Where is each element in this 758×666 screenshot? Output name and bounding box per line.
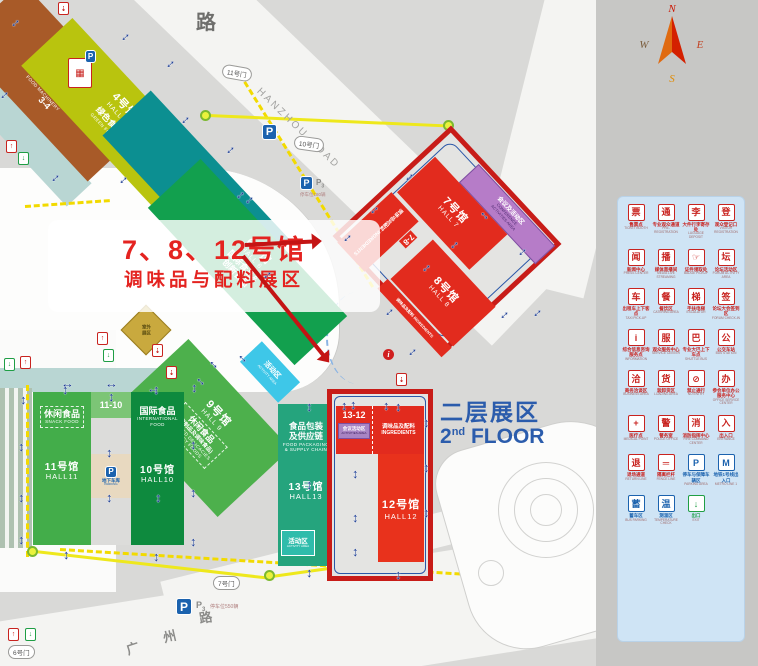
legend-icon: 蓄 (628, 495, 645, 512)
second-floor-label: 二层展区 2nd FLOOR (440, 400, 580, 448)
legend-label-en: TEMPERATURE CHECK (652, 519, 680, 526)
info-point-icon: i (383, 349, 394, 360)
hall-10: 国际食品 INTERNATIONAL FOOD 10号馆 HALL10 (131, 392, 184, 545)
legend-label-en: FORUM ACTIVITY AREA (712, 272, 740, 279)
legend-icon: 李 (688, 204, 705, 221)
entrance-arrow-icon: ↕ (383, 305, 397, 319)
entrance-arrow-icon: ↕ (423, 506, 430, 519)
entrance-arrow-icon: ↕ (341, 399, 348, 412)
gate-7: 7号门 (213, 576, 240, 590)
hall-12-north-band: 13-12 会议活动区 ACTIVITIES AREA 调味品及配料 INGRE… (336, 406, 424, 454)
route-node (264, 570, 275, 581)
legend-label-zh: 出租车上下客点 (622, 306, 650, 316)
legend-item: 巴 专业大巴上下车点 SHUTTLE BUS (682, 329, 710, 361)
legend-label-en: NO ENTRY (688, 393, 704, 397)
legend-item: 温 测温区 TEMPERATURE CHECK (652, 495, 680, 526)
legend-item: P 停车与保障车辆区 PARKING AREA (682, 454, 710, 486)
legend-label-en: ESCALATOR (686, 311, 705, 315)
legend-icon: 洽 (628, 370, 645, 387)
legend-icon: 坛 (718, 249, 735, 266)
entrance-arrow-icon: ↕ (190, 438, 197, 451)
legend-item: ↓ 出口 EXIT (682, 495, 710, 526)
entrance-arrow-icon: ↕ (383, 399, 390, 412)
legend-icon: 温 (658, 495, 675, 512)
compass-icon: N S W E (630, 2, 714, 86)
legend-icon: 餐 (658, 288, 675, 305)
exit-badge-icon: ↑ (6, 140, 17, 153)
entrance-arrow-icon: ↕ (106, 491, 113, 504)
entrance-arrow-icon: ↕ (153, 383, 160, 396)
entrance-arrow-icon: ↕ (352, 545, 359, 558)
corridor-11-10: 11-10 P 地下车库 PARKING (91, 392, 131, 545)
legend-icon: 警 (658, 415, 675, 432)
legend-label-en: MEDIA LIVE STREAMING (652, 272, 680, 279)
legend-item: 蓄 蓄车区 BUS PARKING (622, 495, 650, 526)
route-node (200, 110, 211, 121)
entrance-arrow-icon: ↕ (63, 548, 70, 561)
legend-icon: 消 (688, 415, 705, 432)
lane-dash (26, 385, 29, 557)
legend-label-en: TAXI PICK-UP (626, 317, 647, 321)
legend-label-en: FIRE COMMAND CENTER (682, 438, 710, 445)
legend-item: 公 公交车站 BUS STATION (712, 329, 740, 361)
legend-label-en: MEDICAL POINT (624, 438, 649, 442)
parking-icon: P (176, 598, 192, 615)
legend-icon: 办 (718, 370, 735, 387)
legend-label-zh: 综合信息咨询服务点 (622, 347, 650, 357)
legend-item: ☞ 证件领取处 BADGE PICKUP (682, 249, 710, 280)
activity-area-13: 活动区 ACTIVITY AREA (281, 530, 315, 556)
legend-item: 车 出租车上下客点 TAXI PICK-UP (622, 288, 650, 320)
legend-icon: 服 (658, 329, 675, 346)
legend-icon: M (718, 454, 735, 471)
entrance-arrow-icon: ↕ (350, 398, 357, 411)
legend-label-en: INFORMATION (625, 358, 647, 362)
entrance-arrow-icon: ↕ (190, 486, 197, 499)
entrance-arrow-icon: ↕ (406, 345, 420, 359)
legend-item: ⊘ 禁止通行 NO ENTRY (682, 370, 710, 406)
legend-item: 入 出入口 ENTRANCE (712, 415, 740, 446)
parking-icon: P (105, 466, 117, 478)
parking-p3-label: P3 (196, 600, 205, 613)
legend-item: 消 消防指挥中心 FIRE COMMAND CENTER (682, 415, 710, 446)
legend-label-en: RETURN LINE (625, 478, 646, 482)
parking-icon: P (300, 176, 313, 190)
map-marker-icon: ⇣ (396, 373, 407, 386)
svg-text:S: S (669, 73, 675, 85)
legend-item: 货 装卸货区 LOADING AREA (652, 370, 680, 406)
exit-badge-icon: ↑ (97, 332, 108, 345)
legend-label-zh: 专业大巴上下车点 (682, 347, 710, 357)
gate-6: 6号门 (8, 645, 35, 659)
legend-icon: 梯 (688, 288, 705, 305)
legend-icon: ═ (658, 454, 675, 471)
activities-chip: 会议活动区 ACTIVITIES AREA (338, 423, 370, 439)
entrance-badge-icon: ↓ (4, 358, 15, 371)
legend-item: M 地铁1号线出入口 METRO LINE 1 (712, 454, 740, 486)
entrance-arrow-icon: ↕ (106, 446, 113, 459)
legend-item: 通 专业观众通道 PRE-REGISTRATION (652, 204, 680, 240)
legend-icon: 巴 (688, 329, 705, 346)
legend-label-en: ENTRANCE (717, 438, 735, 442)
entrance-arrow-icon: ↕ (531, 306, 545, 320)
legend-icon: 车 (628, 288, 645, 305)
legend-icon: 入 (718, 415, 735, 432)
exit-badge-icon: ↑ (20, 356, 31, 369)
title-zone: 调味品与配料展区 (48, 266, 380, 292)
entrance-arrow-icon: ↕ (18, 440, 25, 453)
legend-label-en: OFFICE SERVICE CENTER (712, 399, 740, 406)
hall-12: 12号馆 HALL12 (378, 454, 424, 562)
legend-item: 梯 手扶电梯 ESCALATOR (682, 288, 710, 320)
legend-label-en: LOADING AREA (654, 393, 678, 397)
entrance-arrow-icon: ↕ (423, 461, 430, 474)
parking-icon: P (85, 50, 96, 63)
legend-item: 签 论坛大会签到区 FORUM CHECK-IN (712, 288, 740, 320)
legend-icon: 退 (628, 454, 645, 471)
legend-label-en: POLICE OFFICE (654, 438, 678, 442)
legend-icon: 签 (718, 288, 735, 305)
entrance-badge-icon: ↓ (103, 349, 114, 362)
legend-item: + 医疗点 MEDICAL POINT (622, 415, 650, 446)
entrance-badge-icon: ↓ (25, 628, 36, 641)
route-node (27, 546, 38, 557)
legend-icon: 公 (718, 329, 735, 346)
entrance-arrow-icon: ↕ (108, 390, 115, 403)
parking-note: 停车位550辆 (210, 603, 238, 610)
legend-label-en: PRESS CENTER (624, 272, 649, 276)
legend-item: 洽 商务洽谈区 BUSINESS AREA (622, 370, 650, 406)
legend-item: 票 售票点 TICKET BOOTH (622, 204, 650, 240)
legend-label-en: BUS PARKING (625, 519, 647, 523)
entrance-arrow-icon: ↕ (352, 467, 359, 480)
entrance-arrow-icon: ↕ (306, 478, 313, 491)
legend-icon: 登 (718, 204, 735, 221)
legend-icon: + (628, 415, 645, 432)
legend-item: 播 媒体直播间 MEDIA LIVE STREAMING (652, 249, 680, 280)
legend-label-en: SERVICE CENTER (652, 352, 680, 356)
entrance-arrow-icon: ↕ (395, 400, 402, 413)
legend-label-en: PARKING AREA (684, 483, 708, 487)
map-marker-icon: ⇣ (166, 366, 177, 379)
entrance-badge-icon: ↓ (18, 152, 29, 165)
entrance-arrow-icon: ↕ (190, 535, 197, 548)
entrance-arrow-icon: ↕ (153, 550, 160, 563)
legend-item: 退 退场通道 RETURN LINE (622, 454, 650, 486)
map-marker-icon: ⇣ (58, 2, 69, 15)
legend-label-en: BADGE PICKUP (684, 272, 708, 276)
legend-label-en: FORUM CHECK-IN (712, 317, 740, 321)
entrance-arrow-icon: ↕ (306, 400, 313, 413)
legend-item: 警 警务室 POLICE OFFICE (652, 415, 680, 446)
map-marker-icon: ⇣ (152, 344, 163, 357)
legend-item: 李 大件行李寄存处 LUGGAGE DEPOSIT (682, 204, 710, 240)
legend-icon: 货 (658, 370, 675, 387)
entrance-arrow-icon: ↕ (179, 113, 193, 127)
roof-circle (530, 494, 562, 526)
parking-note: 停车位180辆 (300, 192, 326, 198)
legend-label-en: CATERING AREA (653, 311, 679, 315)
legend-label-en: SHUTTLE BUS (685, 358, 707, 362)
legend-icon: ☞ (688, 249, 705, 266)
entrance-arrow-icon: ↕ (62, 383, 69, 396)
entrance-arrow-icon: ↕ (164, 57, 178, 71)
entrance-arrow-icon: ↕ (306, 566, 313, 579)
legend-icon: 播 (658, 249, 675, 266)
legend-icon: 票 (628, 204, 645, 221)
legend-label-en: PRE-REGISTRATION (652, 227, 680, 234)
legend-item: 服 观众服务中心 SERVICE CENTER (652, 329, 680, 361)
exhibition-map: 3号馆 HALL 3 国际机械 FOOD MACHINERY 4号馆 HALL … (0, 0, 758, 666)
legend-icon: i (628, 329, 645, 346)
legend-icon: ↓ (688, 495, 705, 512)
legend-item: 坛 论坛活动区 FORUM ACTIVITY AREA (712, 249, 740, 280)
legend-item: 办 参会单位办公服务中心 OFFICE SERVICE CENTER (712, 370, 740, 406)
legend-label-en: FENCE LINE (657, 478, 676, 482)
title-halls: 7、8、12号馆 (48, 228, 380, 267)
legend-item: 登 观众登记口 VISITOR REGISTRATION (712, 204, 740, 240)
exit-badge-icon: ↑ (8, 628, 19, 641)
svg-text:E: E (696, 39, 704, 51)
hall-11: 休闲食品 SNACK FOOD 11号馆 HALL11 (33, 392, 91, 545)
legend-icon: 闻 (628, 249, 645, 266)
highlight-hall-12: 13-12 会议活动区 ACTIVITIES AREA 调味品及配料 INGRE… (327, 389, 433, 581)
entrance-arrow-icon: ↕ (352, 511, 359, 524)
legend-icon: ⊘ (688, 370, 705, 387)
svg-text:W: W (639, 39, 649, 51)
legend-item: i 综合信息咨询服务点 INFORMATION (622, 329, 650, 361)
legend-item: 闻 新闻中心 PRESS CENTER (622, 249, 650, 280)
entrance-arrow-icon: ↕ (18, 491, 25, 504)
entrance-arrow-icon: ↕ (18, 533, 25, 546)
legend-label-en: BUSINESS AREA (623, 393, 649, 397)
legend-label-en: TICKET BOOTH (624, 227, 648, 231)
entrance-arrow-icon: ↕ (20, 393, 27, 406)
entrance-arrow-icon: ↕ (423, 416, 430, 429)
entrance-arrow-icon: ↕ (224, 143, 238, 157)
parking-p3-label: P3 (316, 178, 324, 190)
road-name-top: 路 (196, 6, 216, 35)
roof-circle (478, 560, 504, 586)
legend-label-en: METRO LINE 1 (715, 483, 737, 487)
legend-icon: P (688, 454, 705, 471)
legend-label-en: VISITOR REGISTRATION (712, 227, 740, 234)
entrance-arrow-icon: ↕ (119, 30, 133, 44)
legend-item: 餐 餐饮区 CATERING AREA (652, 288, 680, 320)
legend-label-en: EXIT (692, 519, 699, 523)
parking-icon: P (262, 124, 277, 140)
legend-panel: 票 售票点 TICKET BOOTH 通 专业观众通道 PRE-REGISTRA… (617, 196, 745, 642)
legend-label-en: LUGGAGE DEPOSIT (682, 232, 710, 239)
legend-label-zh: 论坛大会签到区 (712, 306, 740, 316)
entrance-arrow-icon: ↕ (395, 568, 402, 581)
legend-item: ═ 隔离栏杆 FENCE LINE (652, 454, 680, 486)
entrance-arrow-icon: ↕ (191, 381, 198, 394)
entrance-arrow-icon: ↕ (106, 382, 119, 389)
entrance-arrow-icon: ↕ (155, 491, 162, 504)
legend-icon: 通 (658, 204, 675, 221)
legend-label-en: BUS STATION (716, 352, 737, 356)
svg-text:N: N (667, 3, 676, 15)
